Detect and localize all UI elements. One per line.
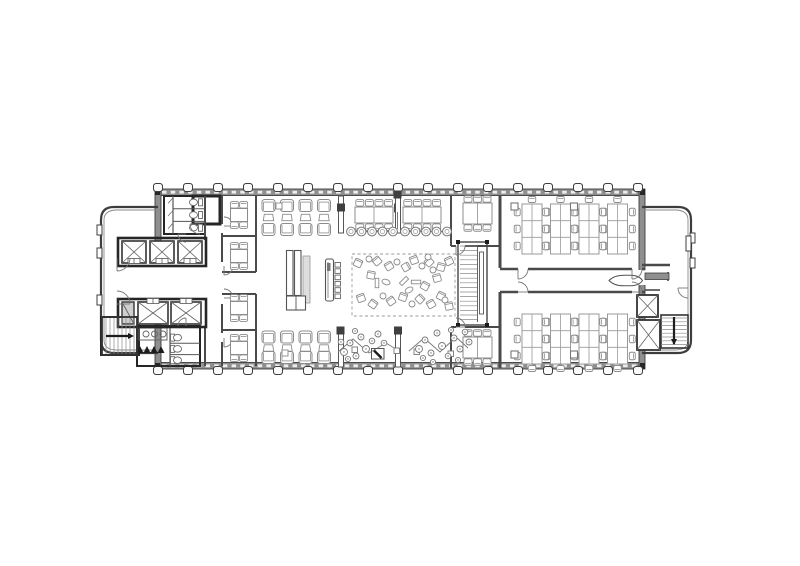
casual-seating-area: [352, 254, 455, 316]
floor-plan-page: [0, 0, 800, 566]
floor-plan-canvas: [0, 0, 800, 566]
right-shafts: [637, 295, 660, 350]
restrooms: [137, 196, 206, 366]
